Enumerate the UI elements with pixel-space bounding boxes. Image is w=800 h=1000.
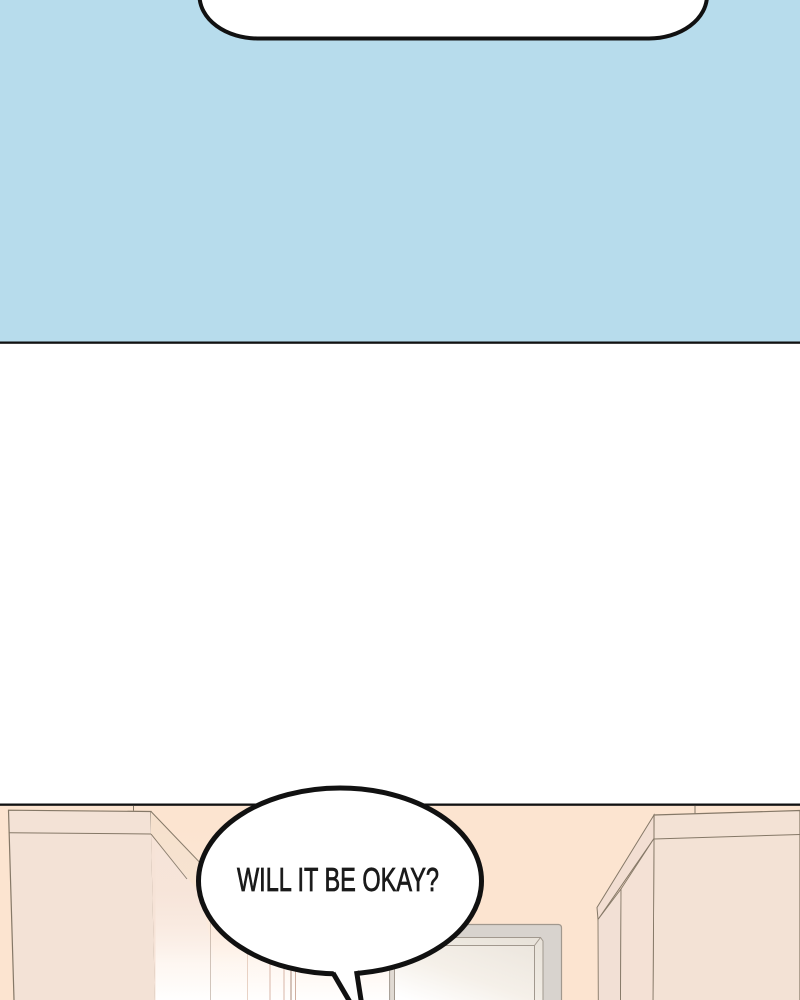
svg-text:WILL IT BE OKAY?: WILL IT BE OKAY? [237, 862, 439, 899]
